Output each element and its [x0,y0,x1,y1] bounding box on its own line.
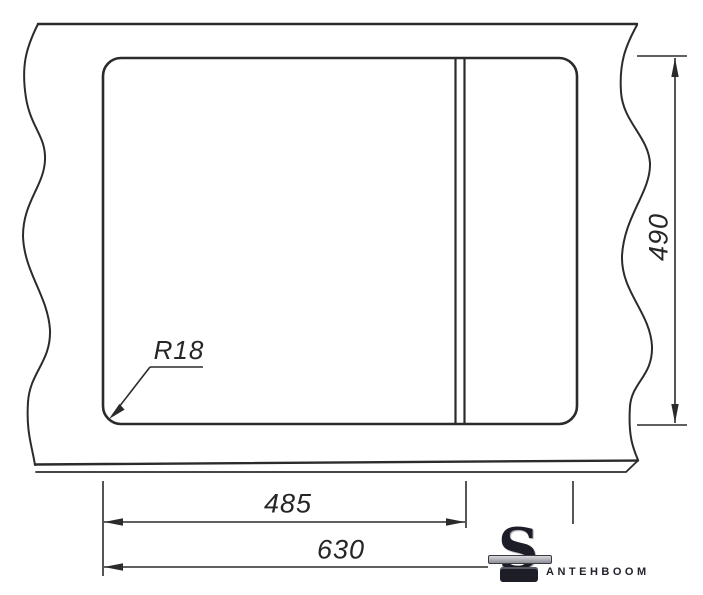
dim-label-depth: 490 [646,213,673,261]
technical-drawing: 485 630 490 R18 S ANTEHBOOM [0,0,703,595]
pipe-clamp-icon [500,567,538,582]
dim-label-total-width: 630 [317,537,365,564]
dim-630-arrow-left-icon [104,563,123,570]
pipe-bar-icon [488,555,552,564]
dim-485-arrow-left-icon [104,518,123,525]
dim-490-arrow-up-icon [671,58,678,77]
dim-490-arrow-down-icon [671,404,678,423]
brand-logo-icon: S [494,529,552,587]
brand-watermark: S ANTEHBOOM [488,527,620,587]
brand-wordmark: ANTEHBOOM [546,566,650,578]
break-line-left [23,24,50,465]
dim-label-corner-radius: R18 [154,337,205,363]
countertop-front-edge-outer [35,461,638,465]
sink-cutout-outline [103,58,577,424]
dim-label-bowl-width: 485 [264,491,312,518]
dim-485-arrow-right-icon [446,518,465,525]
drawing-linework [0,0,703,595]
